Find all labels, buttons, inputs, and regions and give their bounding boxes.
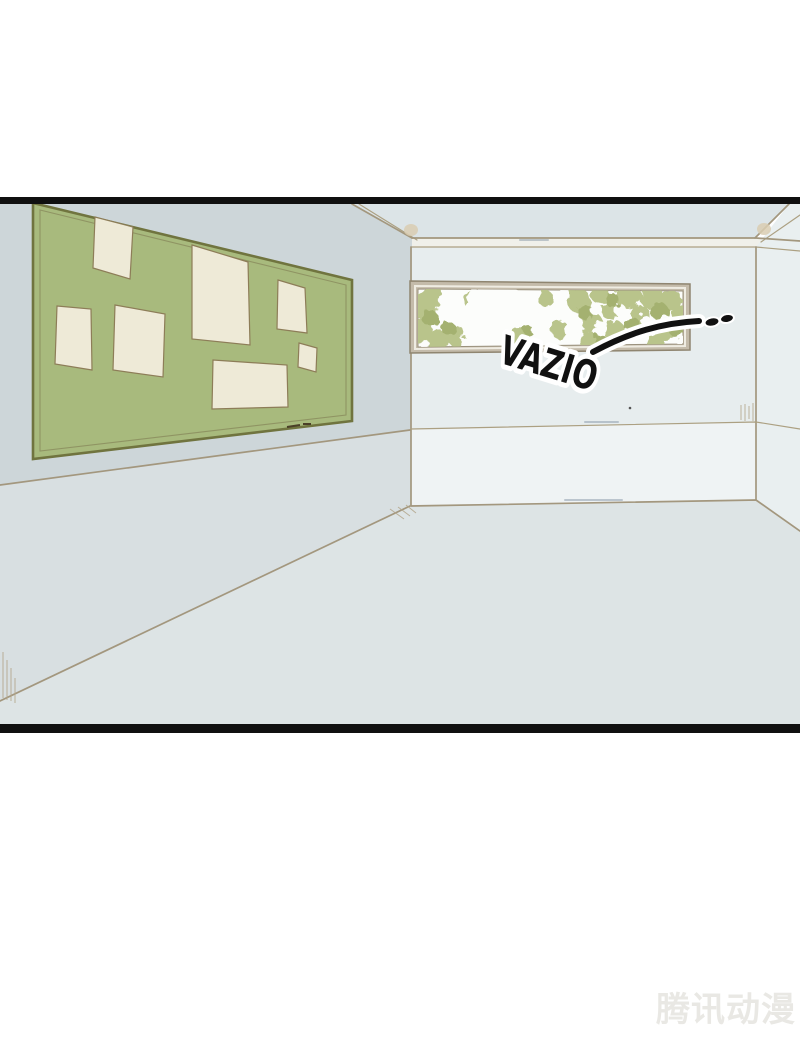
comic-page: VAZIO 腾讯动漫 xyxy=(0,0,800,1040)
panel-border-bottom xyxy=(0,724,800,733)
watermark-tencent-comics: 腾讯动漫 xyxy=(656,990,796,1030)
board-paper xyxy=(212,360,288,409)
board-paper xyxy=(55,306,92,370)
board-paper xyxy=(298,343,317,372)
board-paper xyxy=(93,217,133,279)
right-wall xyxy=(756,204,800,531)
panel-border-top xyxy=(0,197,800,204)
board-paper xyxy=(113,305,165,377)
board-paper xyxy=(277,280,307,333)
comic-panel: VAZIO 腾讯动漫 xyxy=(0,0,800,1040)
board-paper xyxy=(192,245,250,345)
wall-speck xyxy=(629,407,632,410)
ceiling xyxy=(352,204,789,238)
back-wall-lower xyxy=(411,422,757,506)
